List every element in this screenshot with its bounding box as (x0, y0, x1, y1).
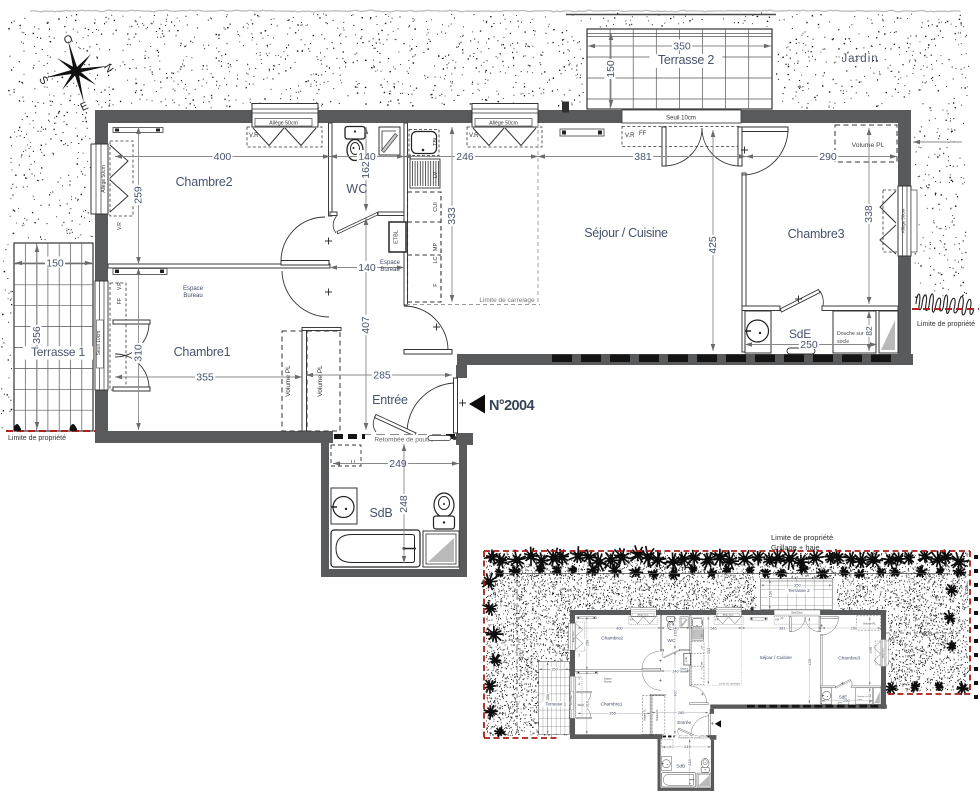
svg-text:SdE: SdE (789, 327, 811, 341)
svg-text:338: 338 (863, 205, 875, 223)
svg-text:150: 150 (46, 257, 64, 269)
svg-text:FF: FF (639, 131, 647, 137)
svg-text:162: 162 (360, 161, 372, 179)
svg-text:140: 140 (358, 262, 376, 274)
svg-text:Allège 50cm: Allège 50cm (101, 165, 107, 193)
svg-text:Terrasse 1: Terrasse 1 (31, 345, 86, 359)
svg-text:Limite de propriété: Limite de propriété (771, 533, 833, 542)
svg-text:Seuil 10cm: Seuil 10cm (666, 116, 696, 122)
svg-text:LL: LL (351, 460, 357, 466)
svg-text:400: 400 (214, 151, 232, 163)
svg-text:CUI: CUI (433, 202, 439, 212)
svg-text:V.R: V.R (625, 133, 635, 139)
svg-text:Terrasse 2: Terrasse 2 (658, 53, 715, 67)
svg-text:TBL: TBL (433, 136, 439, 146)
svg-text:Limite de propriété: Limite de propriété (917, 321, 975, 328)
svg-text:333: 333 (446, 207, 458, 225)
svg-text:400: 400 (520, 649, 526, 660)
svg-text:2004: 2004 (720, 572, 735, 579)
svg-text:Grillage + haie: Grillage + haie (771, 543, 820, 552)
svg-text:MP: MP (433, 243, 439, 252)
svg-text:407: 407 (360, 316, 372, 334)
svg-text:Jardin: Jardin (841, 53, 878, 65)
svg-text:Chambre3: Chambre3 (788, 227, 845, 241)
svg-text:Limite de propriété: Limite de propriété (8, 435, 66, 442)
svg-text:V.R: V.R (117, 222, 123, 230)
svg-text:350: 350 (673, 40, 691, 52)
svg-text:310: 310 (133, 344, 145, 362)
svg-text:Limite de carrelage: Limite de carrelage (479, 297, 535, 304)
svg-text:V.R: V.R (469, 133, 479, 139)
svg-text:ETBL: ETBL (394, 230, 400, 244)
svg-text:150: 150 (605, 60, 617, 78)
svg-text:285: 285 (373, 369, 391, 381)
svg-text:Volume PL: Volume PL (317, 365, 324, 397)
svg-text:Allège 50cm: Allège 50cm (901, 208, 906, 233)
svg-text:Douche sur: Douche sur (837, 331, 864, 337)
svg-text:Allège 50cm: Allège 50cm (489, 121, 518, 127)
svg-text:Seuil 10cm: Seuil 10cm (96, 331, 102, 356)
svg-text:Volume PL: Volume PL (285, 365, 292, 397)
svg-text:Bureau: Bureau (183, 293, 202, 299)
svg-text:Entrée: Entrée (372, 393, 408, 407)
svg-text:SdB: SdB (369, 506, 392, 520)
svg-text:400: 400 (922, 632, 933, 638)
svg-text:Bureau: Bureau (380, 267, 399, 273)
svg-text:Espace: Espace (380, 260, 401, 266)
svg-text:Chambre2: Chambre2 (176, 175, 233, 189)
svg-text:N°2004: N°2004 (489, 398, 534, 414)
svg-text:WC: WC (346, 182, 367, 196)
svg-text:246: 246 (456, 151, 474, 163)
svg-text:Retombée de poutre: Retombée de poutre (374, 437, 434, 444)
svg-text:356: 356 (31, 326, 43, 344)
svg-text:V.R: V.R (249, 133, 259, 139)
svg-text:290: 290 (819, 151, 837, 163)
svg-text:248: 248 (398, 495, 410, 513)
svg-text:LV: LV (433, 172, 439, 179)
svg-text:Espace: Espace (183, 286, 204, 292)
svg-text:Allège 50cm: Allège 50cm (269, 121, 298, 127)
svg-text:Séjour / Cuisine: Séjour / Cuisine (584, 226, 668, 240)
svg-text:LC: LC (433, 256, 439, 263)
svg-text:V.R: V.R (117, 282, 123, 290)
svg-text:355: 355 (196, 371, 214, 383)
svg-text:Volume PL: Volume PL (852, 142, 885, 149)
svg-text:381: 381 (634, 151, 652, 163)
svg-text:425: 425 (707, 236, 719, 254)
svg-text:82: 82 (864, 326, 874, 336)
svg-text:FF: FF (117, 298, 123, 304)
svg-text:Chambre1: Chambre1 (174, 345, 231, 359)
svg-text:259: 259 (133, 186, 145, 204)
